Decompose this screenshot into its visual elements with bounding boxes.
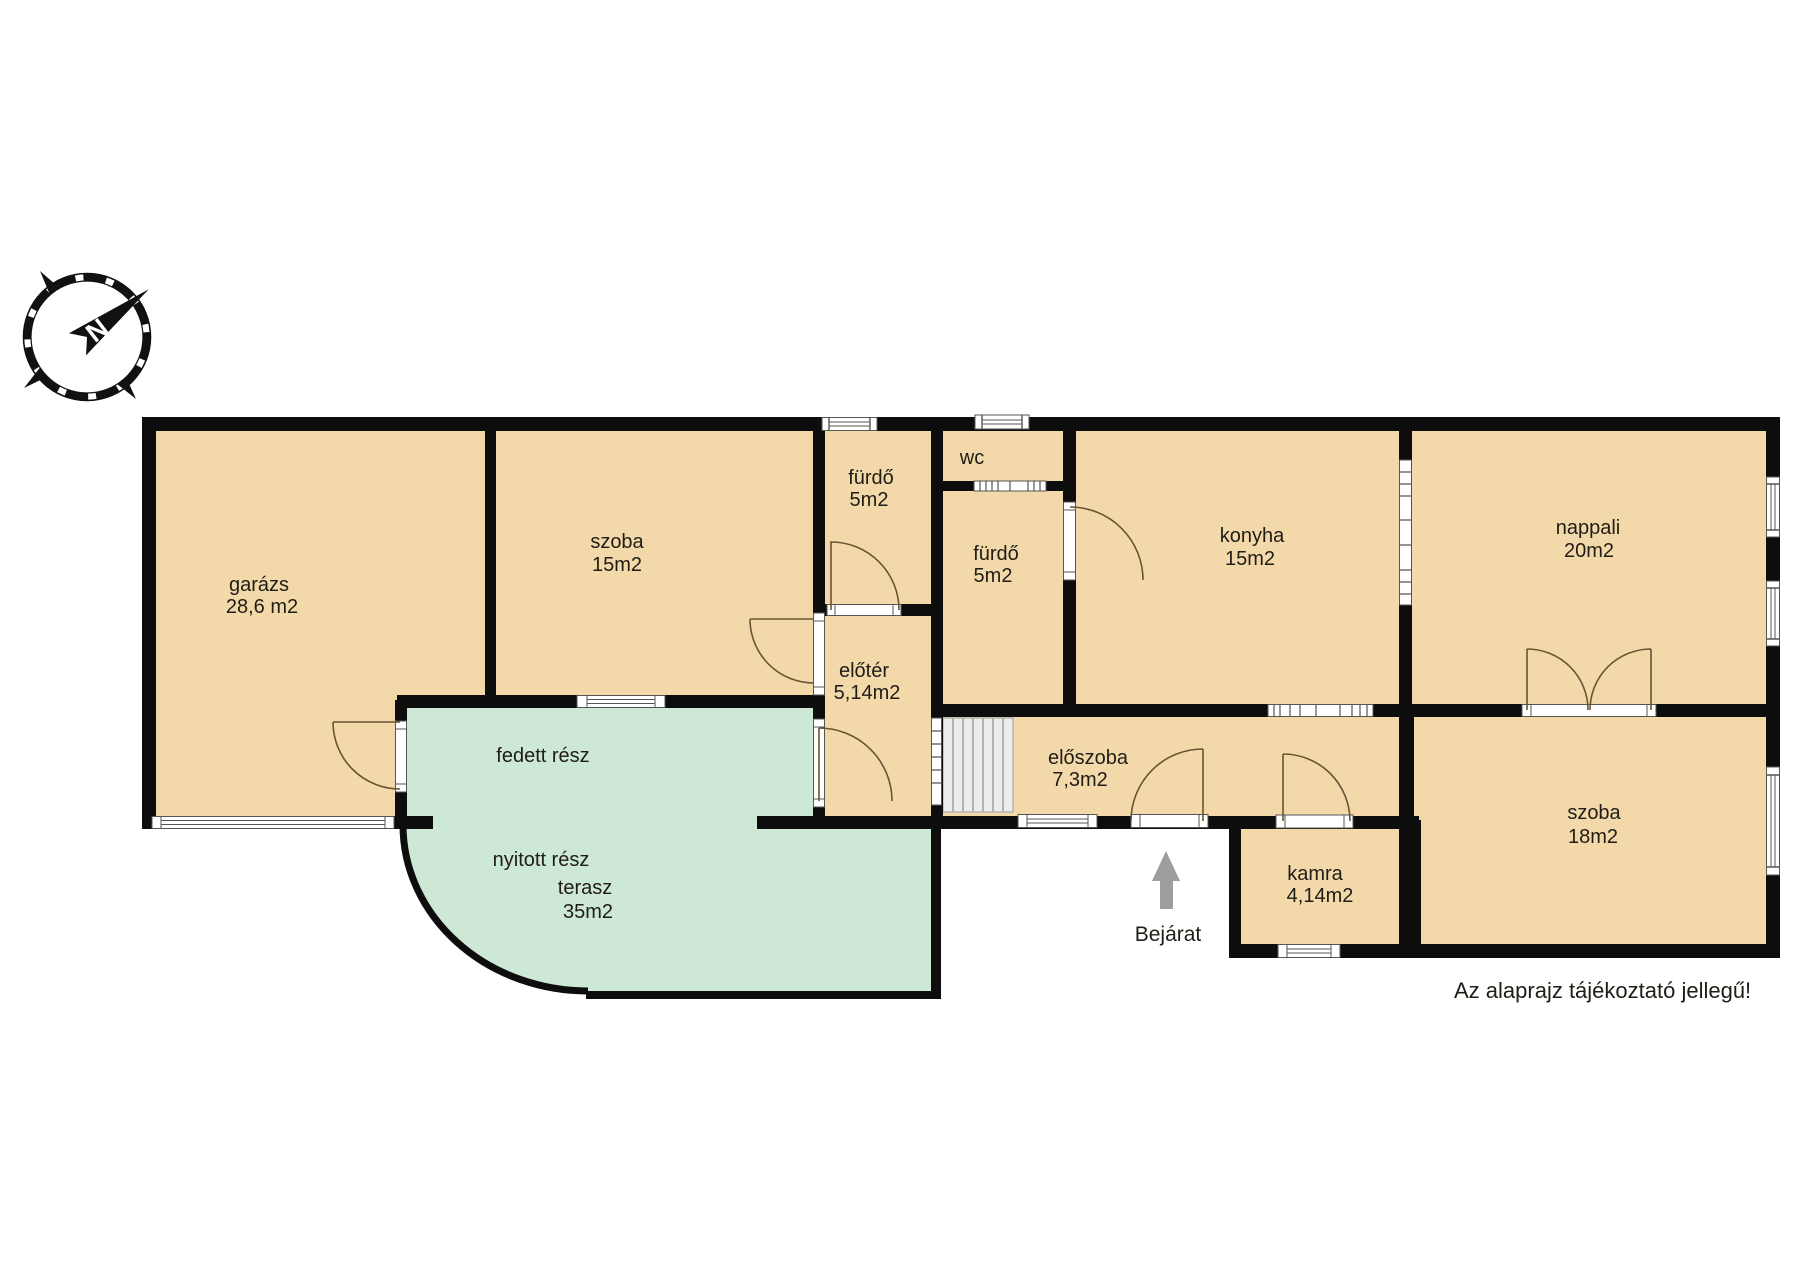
svg-text:5,14m2: 5,14m2: [834, 682, 901, 704]
svg-text:szoba: szoba: [1567, 802, 1621, 824]
svg-text:konyha: konyha: [1220, 525, 1285, 547]
svg-text:15m2: 15m2: [592, 554, 642, 576]
svg-text:15m2: 15m2: [1225, 548, 1275, 570]
svg-text:28,6 m2: 28,6 m2: [226, 596, 298, 618]
svg-text:5m2: 5m2: [850, 489, 889, 511]
svg-text:wc: wc: [959, 447, 984, 469]
svg-text:4,14m2: 4,14m2: [1287, 885, 1354, 907]
svg-text:előszoba: előszoba: [1048, 747, 1129, 769]
svg-text:előtér: előtér: [839, 660, 889, 682]
svg-text:nappali: nappali: [1556, 517, 1621, 539]
svg-text:Bejárat: Bejárat: [1135, 923, 1202, 946]
svg-text:kamra: kamra: [1287, 863, 1343, 885]
svg-text:18m2: 18m2: [1568, 826, 1618, 848]
svg-text:szoba: szoba: [590, 531, 644, 553]
svg-text:terasz: terasz: [558, 877, 612, 899]
svg-text:nyitott rész: nyitott rész: [493, 849, 590, 871]
svg-text:garázs: garázs: [229, 574, 289, 596]
svg-text:Az alaprajz tájékoztató jelleg: Az alaprajz tájékoztató jellegű!: [1454, 978, 1751, 1003]
svg-text:7,3m2: 7,3m2: [1052, 769, 1108, 791]
svg-text:5m2: 5m2: [974, 565, 1013, 587]
svg-text:35m2: 35m2: [563, 901, 613, 923]
svg-text:fürdő: fürdő: [973, 543, 1019, 565]
svg-text:20m2: 20m2: [1564, 540, 1614, 562]
svg-text:fedett rész: fedett rész: [496, 745, 589, 767]
svg-text:fürdő: fürdő: [848, 467, 894, 489]
